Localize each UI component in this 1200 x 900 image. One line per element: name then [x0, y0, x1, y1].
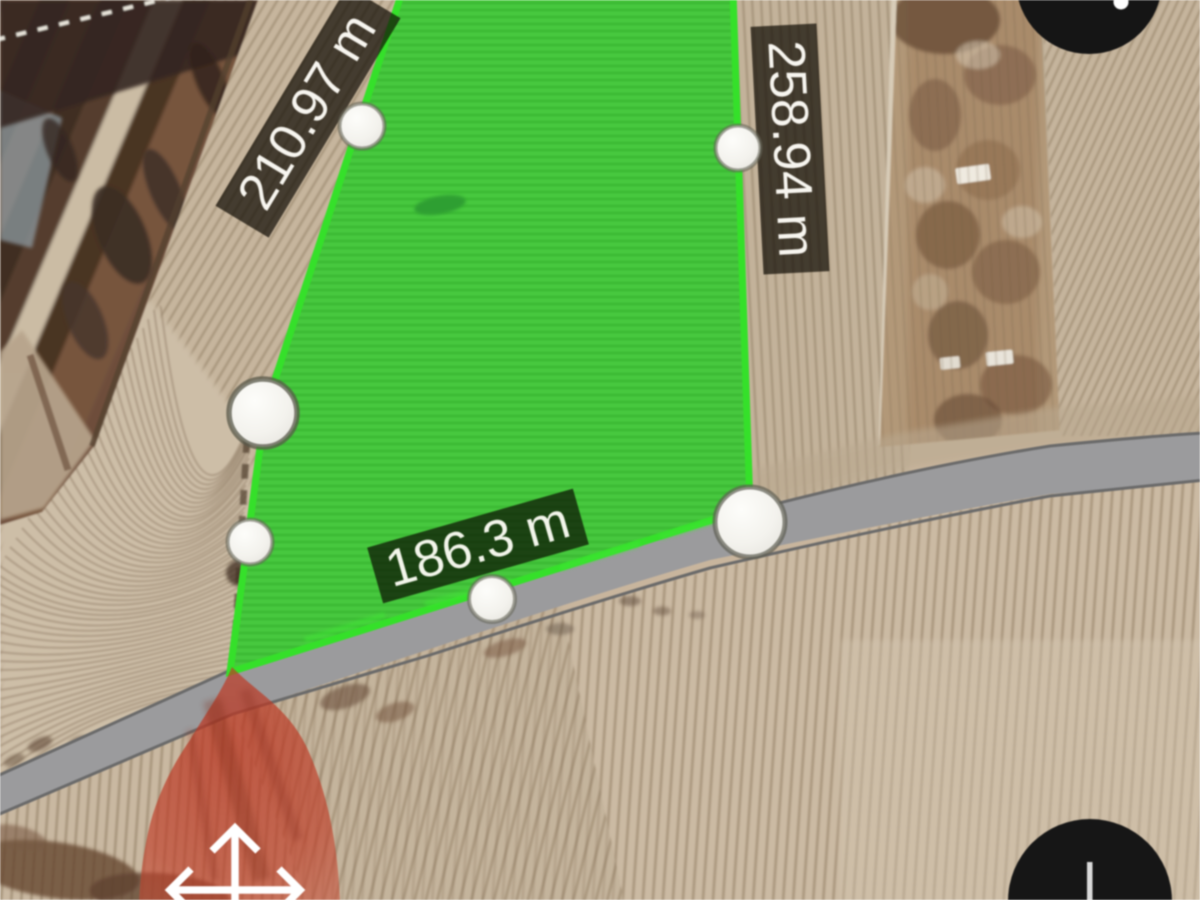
svg-text:258.94 m: 258.94 m — [756, 39, 825, 259]
